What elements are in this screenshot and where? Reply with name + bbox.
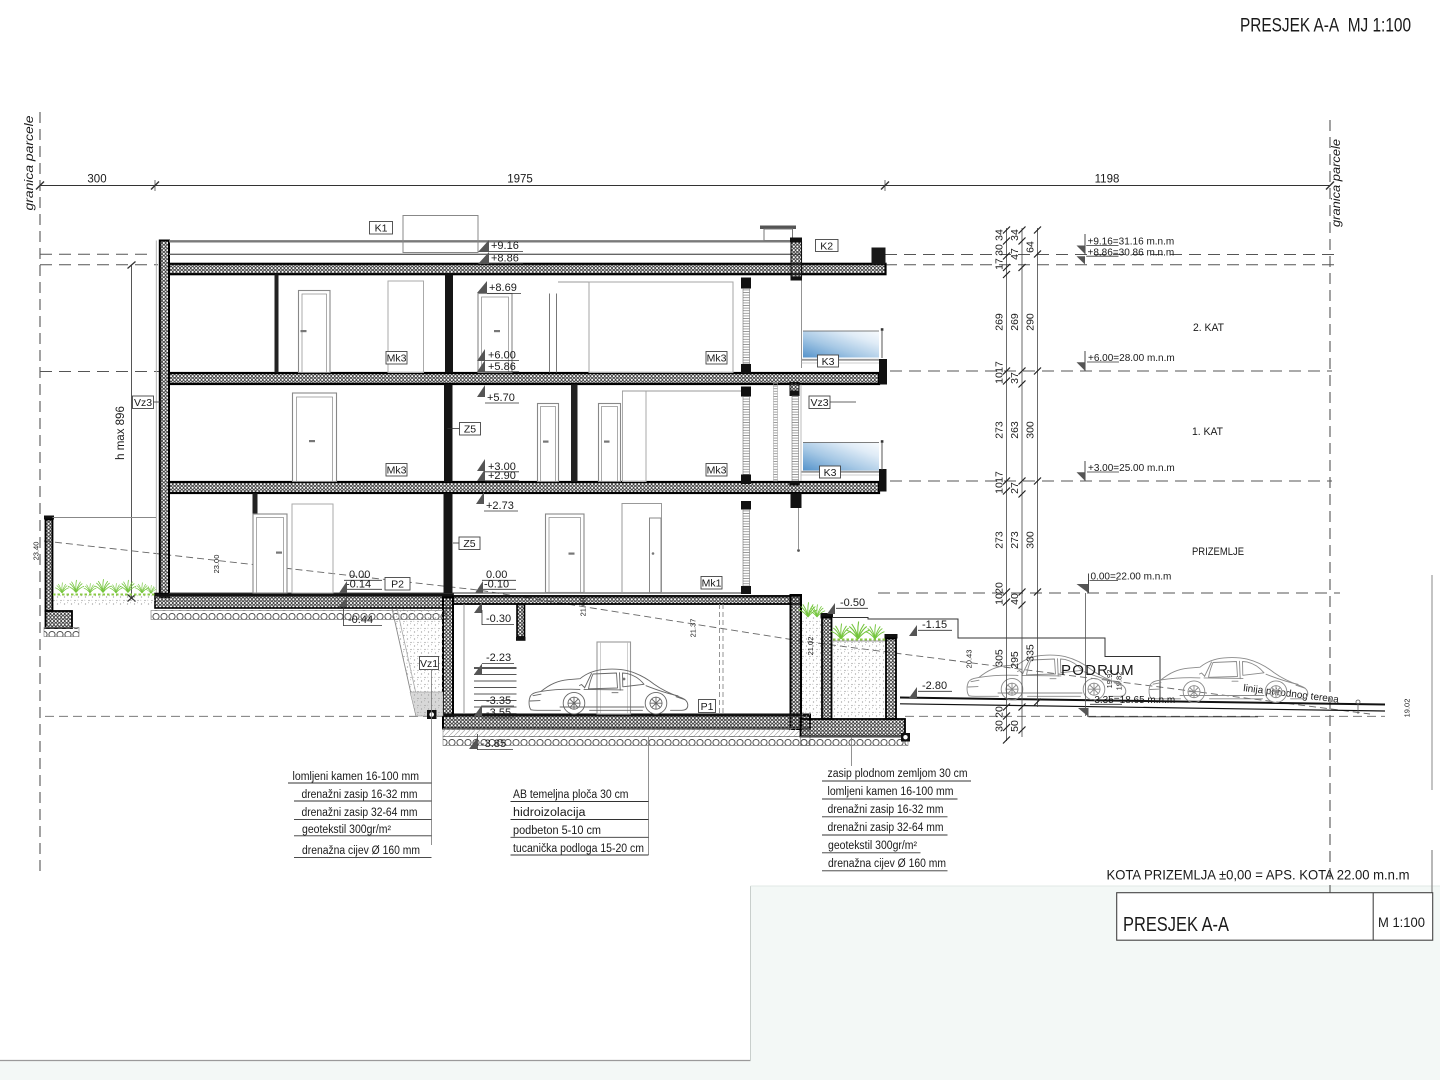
svg-text:40: 40 (1009, 593, 1021, 605)
svg-text:Vz1: Vz1 (420, 658, 438, 670)
svg-text:zasip plodnom zemljom 30 cm: zasip plodnom zemljom 30 cm (828, 768, 968, 780)
svg-text:lomljeni kamen 16-100 mm: lomljeni kamen 16-100 mm (293, 771, 420, 783)
svg-text:-1.15: -1.15 (922, 619, 947, 631)
svg-text:drenažna cijev Ø 160 mm: drenažna cijev Ø 160 mm (302, 845, 420, 857)
svg-text:19.02: 19.02 (1403, 699, 1412, 718)
svg-text:30: 30 (994, 244, 1006, 256)
svg-text:K3: K3 (822, 356, 835, 368)
svg-text:+6.00: +6.00 (488, 350, 516, 362)
svg-text:PODRUM: PODRUM (1061, 662, 1135, 679)
svg-text:geotekstil 300gr/m²: geotekstil 300gr/m² (302, 824, 391, 836)
svg-text:drenažni zasip 16-32 mm: drenažni zasip 16-32 mm (302, 789, 418, 801)
svg-text:335: 335 (1025, 644, 1037, 662)
svg-text:300: 300 (1025, 531, 1037, 549)
svg-text:-0.10: -0.10 (484, 579, 509, 591)
svg-text:64: 64 (1025, 241, 1037, 253)
svg-text:drenažna cijev Ø 160 mm: drenažna cijev Ø 160 mm (828, 858, 946, 870)
svg-text:+8.86: +8.86 (491, 253, 519, 265)
svg-text:P1: P1 (701, 701, 714, 713)
svg-text:K2: K2 (820, 240, 833, 252)
svg-text:Vz3: Vz3 (134, 397, 152, 409)
svg-text:Vz3: Vz3 (810, 397, 828, 409)
svg-text:PRESJEK A-A: PRESJEK A-A (1123, 913, 1229, 936)
svg-text:granica parcele: granica parcele (24, 116, 36, 211)
svg-text:Mk3: Mk3 (387, 465, 407, 477)
svg-text:hidroizolacija: hidroizolacija (513, 807, 586, 819)
svg-text:269: 269 (1009, 313, 1021, 331)
svg-text:drenažni zasip 32-64 mm: drenažni zasip 32-64 mm (302, 807, 418, 819)
svg-text:2. KAT: 2. KAT (1193, 322, 1224, 334)
svg-text:305: 305 (994, 649, 1006, 667)
svg-text:1198: 1198 (1095, 174, 1120, 186)
svg-text:34: 34 (1009, 229, 1021, 241)
svg-text:20: 20 (994, 582, 1006, 594)
svg-text:M 1:100: M 1:100 (1378, 914, 1425, 930)
svg-text:drenažni zasip 32-64 mm: drenažni zasip 32-64 mm (828, 822, 944, 834)
svg-text:47: 47 (1009, 248, 1021, 260)
svg-text:Mk3: Mk3 (707, 465, 727, 477)
svg-text:Mk3: Mk3 (707, 353, 727, 365)
svg-text:KOTA PRIZEMLJA ±0,00 = APS. KO: KOTA PRIZEMLJA ±0,00 = APS. KOTA 22.00 m… (1107, 867, 1410, 883)
svg-text:1975: 1975 (507, 174, 533, 186)
svg-text:geotekstil 300gr/m²: geotekstil 300gr/m² (828, 840, 917, 852)
svg-text:21.37: 21.37 (689, 619, 698, 638)
svg-text:10: 10 (994, 593, 1006, 605)
svg-text:17: 17 (994, 471, 1006, 483)
svg-text:-2.80: -2.80 (922, 680, 947, 692)
svg-text:-3.85: -3.85 (481, 738, 506, 750)
svg-text:27: 27 (1009, 482, 1021, 494)
svg-text:+9.16: +9.16 (491, 240, 519, 252)
svg-text:+9.16=31.16 m.n.m: +9.16=31.16 m.n.m (1088, 237, 1175, 248)
svg-text:-0.30: -0.30 (486, 613, 511, 625)
svg-text:K3: K3 (824, 467, 837, 479)
svg-text:+2.90: +2.90 (488, 470, 516, 482)
svg-text:10: 10 (994, 482, 1006, 494)
svg-text:17: 17 (994, 258, 1006, 270)
svg-text:-3.55: -3.55 (486, 707, 511, 719)
svg-text:17: 17 (994, 361, 1006, 373)
svg-text:273: 273 (994, 531, 1006, 549)
svg-text:23.00: 23.00 (212, 555, 221, 574)
svg-text:20.43: 20.43 (965, 650, 974, 669)
svg-text:AB temeljna ploča 30 cm: AB temeljna ploča 30 cm (513, 789, 629, 801)
svg-text:+5.70: +5.70 (487, 392, 515, 404)
svg-text:Mk3: Mk3 (387, 353, 407, 365)
svg-text:drenažni zasip 16-32 mm: drenažni zasip 16-32 mm (828, 804, 944, 816)
svg-text:PRIZEMLJE: PRIZEMLJE (1192, 546, 1244, 558)
svg-text:273: 273 (994, 421, 1006, 439)
svg-text:K1: K1 (375, 223, 388, 235)
svg-text:23.40: 23.40 (32, 542, 41, 561)
svg-text:+8.86=30.86 m.n.m: +8.86=30.86 m.n.m (1088, 247, 1175, 258)
svg-text:-3.35: -3.35 (486, 695, 511, 707)
svg-text:20: 20 (994, 706, 1006, 718)
svg-text:34: 34 (994, 229, 1006, 241)
svg-text:-0.14: -0.14 (346, 579, 371, 591)
svg-text:P2: P2 (391, 579, 404, 591)
svg-text:269: 269 (994, 313, 1006, 331)
svg-text:lomljeni kamen 16-100 mm: lomljeni kamen 16-100 mm (828, 786, 954, 798)
svg-text:Z5: Z5 (463, 538, 475, 550)
svg-text:PRESJEK A-A MJ 1:100: PRESJEK A-A MJ 1:100 (1240, 16, 1411, 37)
svg-text:-0.44: -0.44 (348, 614, 373, 626)
svg-text:21.60: 21.60 (579, 598, 588, 617)
svg-text:30: 30 (994, 720, 1006, 732)
svg-text:300: 300 (1025, 421, 1037, 439)
svg-text:50: 50 (1009, 720, 1021, 732)
svg-text:290: 290 (1025, 313, 1037, 331)
svg-text:podbeton 5-10 cm: podbeton 5-10 cm (513, 825, 601, 837)
svg-text:273: 273 (1009, 531, 1021, 549)
svg-text:tucanička podloga 15-20 cm: tucanička podloga 15-20 cm (513, 843, 644, 855)
svg-text:300: 300 (87, 174, 106, 186)
svg-text:+5.86: +5.86 (488, 361, 516, 373)
svg-text:1. KAT: 1. KAT (1192, 426, 1223, 438)
svg-text:+2.73: +2.73 (486, 500, 514, 512)
svg-text:-2.23: -2.23 (486, 652, 511, 664)
svg-text:-0.50: -0.50 (840, 597, 865, 609)
svg-text:21.02: 21.02 (806, 637, 815, 656)
svg-text:+8.69: +8.69 (489, 282, 517, 294)
svg-text:Mk1: Mk1 (702, 578, 722, 590)
svg-text:295: 295 (1009, 651, 1021, 669)
svg-text:Z5: Z5 (464, 424, 476, 436)
svg-text:263: 263 (1009, 421, 1021, 439)
svg-text:37: 37 (1009, 372, 1021, 384)
svg-text:10: 10 (994, 372, 1006, 384)
svg-text:h max 896: h max 896 (115, 406, 127, 460)
